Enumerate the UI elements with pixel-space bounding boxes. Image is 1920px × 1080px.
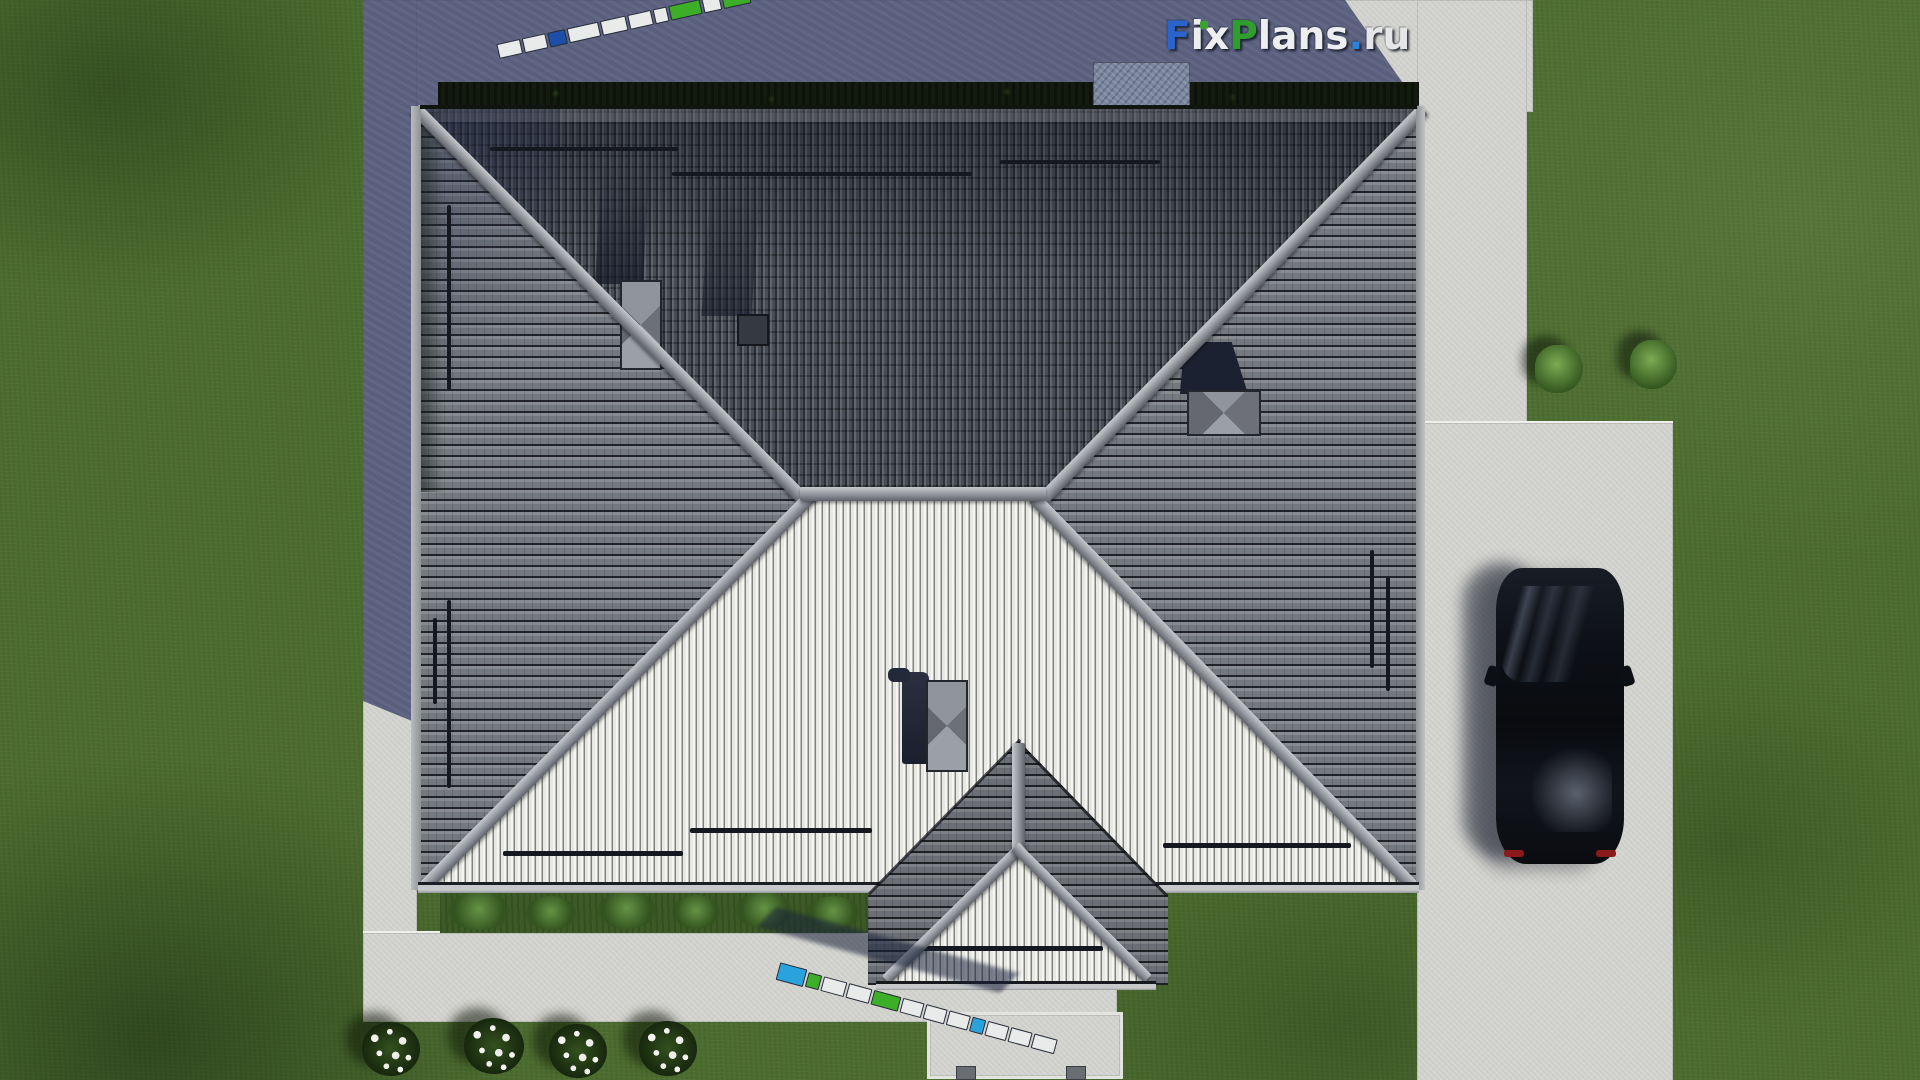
car-taillight-left (1504, 850, 1524, 857)
right-path (1417, 0, 1527, 430)
snow-rail (447, 600, 451, 788)
main-ridge (800, 487, 1046, 501)
bush-driveway-1 (1535, 345, 1583, 393)
snow-rail (672, 172, 972, 176)
snow-rail (690, 828, 872, 833)
ruler-segment (923, 1004, 948, 1024)
west-gutter (411, 106, 421, 890)
left-eave-dark-strip (420, 112, 444, 492)
brand-letters-ru: ru (1363, 14, 1410, 59)
north-eave-line (420, 105, 1417, 109)
brand-letters-ix: ix (1191, 14, 1230, 59)
snow-rail (1163, 843, 1351, 848)
shrub (598, 891, 656, 929)
ruler-segment (653, 7, 670, 25)
chimney-south (928, 682, 966, 770)
snow-rail (1386, 577, 1390, 691)
chimney-right (1189, 392, 1259, 434)
vent-shadow-streak (701, 182, 760, 316)
roof-vent (737, 314, 769, 346)
ruler-segment (946, 1010, 971, 1030)
shrub (526, 896, 576, 930)
ruler-segment (900, 997, 925, 1017)
brand-dot: . (1348, 14, 1363, 59)
bush-driveway-2 (1630, 340, 1677, 389)
brand-watermark: FixPlans.ru (1164, 14, 1410, 59)
chimney-south-flue (902, 672, 929, 764)
snow-rail (1000, 160, 1160, 164)
north-slope-top-course (420, 108, 1417, 122)
porch-gutter (876, 981, 1156, 990)
brand-letter-p: P (1229, 14, 1258, 59)
brand-letter-f: F (1164, 14, 1191, 59)
ruler-segment (1008, 1027, 1033, 1047)
flower-bush (362, 1022, 420, 1076)
car-windshield-reflection (1502, 586, 1618, 682)
snow-rail (503, 851, 683, 856)
east-gutter (1416, 106, 1425, 890)
north-slope-shade (420, 108, 1417, 278)
flower-bush (464, 1018, 524, 1074)
brand-i-tittle (1200, 21, 1208, 29)
flower-bush (549, 1024, 607, 1078)
ruler-segment (984, 1020, 1009, 1040)
chimney-south-flue-elbow (888, 668, 910, 682)
black-car (1496, 568, 1624, 864)
brand-letters-lans: lans (1258, 14, 1349, 59)
chimney-shadow-streak (595, 168, 649, 284)
snow-rail (433, 618, 437, 704)
snow-rail (490, 147, 678, 151)
shrub (672, 895, 720, 929)
snow-rail (1370, 550, 1374, 668)
aerial-render-scene: FixPlans.ru (0, 0, 1920, 1080)
car-taillight-right (1596, 850, 1616, 857)
ruler-segment (805, 972, 822, 990)
walkway-marker-right (1066, 1066, 1086, 1080)
shrub (448, 892, 510, 930)
snow-rail (447, 205, 451, 390)
walkway-marker-left (956, 1066, 976, 1080)
flower-bush (639, 1021, 697, 1076)
porch-snow-rail (922, 946, 1103, 951)
ruler-segment (969, 1016, 986, 1034)
car-rear-window-glint (1532, 746, 1612, 832)
porch-ridge (1012, 743, 1025, 851)
